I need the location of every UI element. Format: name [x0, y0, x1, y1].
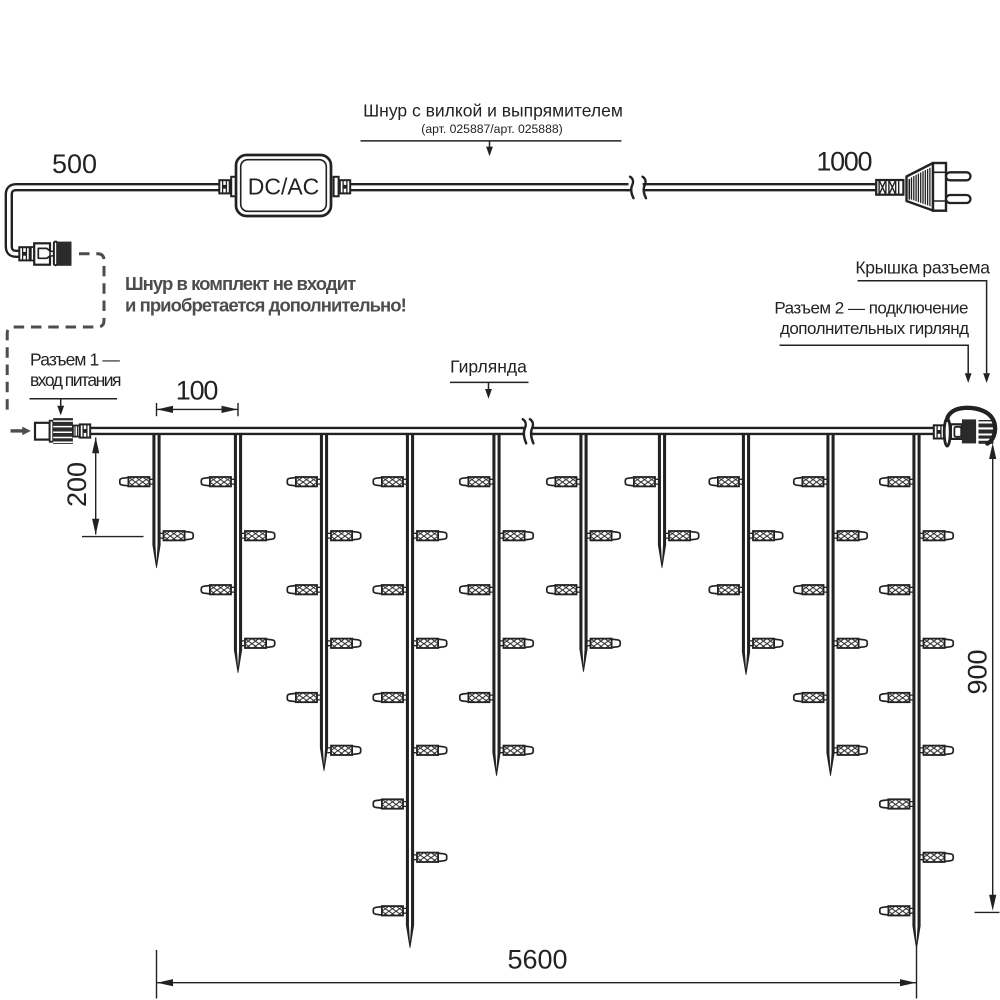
svg-text:200: 200 — [62, 462, 92, 507]
svg-text:и приобретается дополнительно!: и приобретается дополнительно! — [125, 294, 406, 315]
svg-text:1000: 1000 — [816, 147, 871, 177]
svg-text:Крышка разъема: Крышка разъема — [855, 258, 990, 278]
svg-text:100: 100 — [176, 376, 218, 406]
svg-text:(арт. 025887/арт. 025888): (арт. 025887/арт. 025888) — [421, 122, 562, 136]
svg-text:Шнур с вилкой и выпрямителем: Шнур с вилкой и выпрямителем — [363, 101, 623, 121]
svg-text:вход питания: вход питания — [30, 370, 121, 390]
svg-text:дополнительных гирлянд: дополнительных гирлянд — [780, 319, 969, 338]
svg-text:500: 500 — [52, 149, 97, 179]
svg-text:Гирлянда: Гирлянда — [450, 356, 527, 376]
svg-text:Шнур в комплект не входит: Шнур в комплект не входит — [125, 273, 356, 294]
svg-text:900: 900 — [963, 649, 993, 694]
svg-text:Разъем 2 — подключение: Разъем 2 — подключение — [774, 299, 968, 318]
svg-text:DC/AC: DC/AC — [248, 173, 320, 199]
svg-text:5600: 5600 — [507, 944, 567, 974]
svg-text:Разъем 1 —: Разъем 1 — — [30, 349, 120, 369]
